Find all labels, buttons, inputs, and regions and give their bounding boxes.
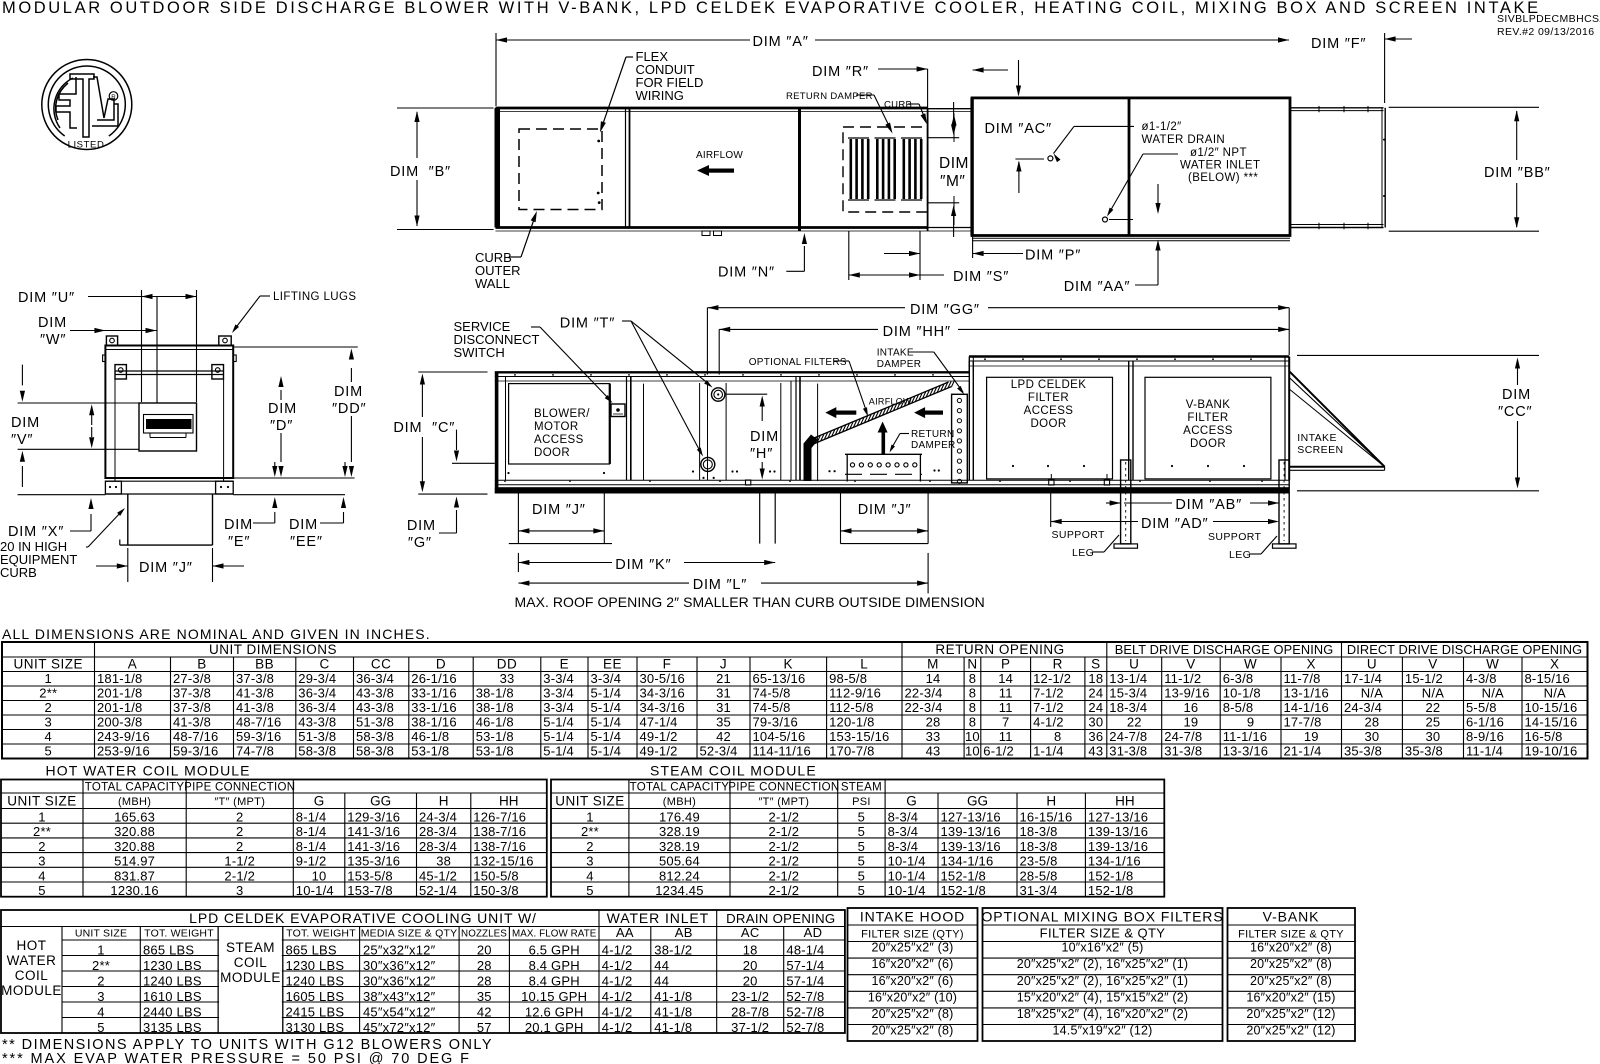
svg-text:15-3/4: 15-3/4 (1109, 686, 1147, 701)
svg-text:200-3/8: 200-3/8 (97, 715, 143, 730)
svg-text:23-1/2: 23-1/2 (731, 989, 769, 1004)
svg-text:19: 19 (1184, 715, 1199, 730)
svg-text:20″x25″x2″ (8): 20″x25″x2″ (8) (871, 1024, 953, 1038)
svg-text:WATER: WATER (7, 953, 57, 968)
svg-text:LIFTING LUGS: LIFTING LUGS (273, 291, 356, 303)
svg-text:138-7/16: 138-7/16 (473, 824, 526, 839)
svg-text:1234.45: 1234.45 (655, 883, 703, 898)
svg-text:28-3/4: 28-3/4 (419, 839, 457, 854)
svg-text:59-3/16: 59-3/16 (173, 744, 219, 759)
svg-text:320.88: 320.88 (114, 824, 155, 839)
svg-text:DIM ″J″: DIM ″J″ (858, 502, 912, 518)
svg-text:20: 20 (743, 958, 758, 973)
svg-text:58-3/8: 58-3/8 (356, 744, 394, 759)
svg-text:45″x72″x12″: 45″x72″x12″ (363, 1020, 436, 1035)
svg-text:5: 5 (45, 744, 52, 759)
svg-text:28: 28 (1365, 715, 1380, 730)
svg-text:65-13/16: 65-13/16 (753, 671, 806, 686)
svg-text:38″x43″x12″: 38″x43″x12″ (363, 989, 436, 1004)
svg-text:35-3/8: 35-3/8 (1344, 744, 1382, 759)
svg-text:13-9/16: 13-9/16 (1164, 686, 1210, 701)
svg-text:1: 1 (38, 810, 45, 825)
svg-text:7: 7 (1002, 715, 1009, 730)
svg-text:25: 25 (1426, 715, 1441, 730)
svg-text:E: E (560, 657, 570, 672)
svg-text:22-3/4: 22-3/4 (905, 686, 943, 701)
svg-text:53-1/8: 53-1/8 (411, 744, 449, 759)
svg-text:4-1/2: 4-1/2 (602, 942, 633, 957)
svg-text:11: 11 (999, 729, 1013, 744)
svg-text:DIM ″R″: DIM ″R″ (812, 64, 869, 80)
svg-text:8: 8 (969, 715, 976, 730)
svg-text:4: 4 (45, 729, 52, 744)
svg-text:41-3/8: 41-3/8 (236, 700, 274, 715)
svg-text:1-1/4: 1-1/4 (1033, 744, 1064, 759)
svg-text:SUPPORT: SUPPORT (1052, 529, 1106, 541)
svg-text:1: 1 (45, 671, 52, 686)
svg-text:EE: EE (603, 657, 622, 672)
svg-text:DIM ″HH″: DIM ″HH″ (883, 324, 951, 340)
svg-text:DIM ″N″: DIM ″N″ (718, 265, 775, 281)
svg-text:5-1/4: 5-1/4 (591, 715, 622, 730)
svg-text:FILTER SIZE (QTY): FILTER SIZE (QTY) (861, 929, 964, 941)
svg-text:HH: HH (499, 794, 519, 809)
svg-text:16-5/8: 16-5/8 (1525, 729, 1563, 744)
svg-text:SIVBLPDECMBHCSAH: SIVBLPDECMBHCSAH (1497, 13, 1600, 25)
svg-text:ACCESS: ACCESS (1183, 425, 1233, 437)
svg-text:M: M (927, 657, 939, 672)
svg-text:865 LBS: 865 LBS (286, 942, 337, 957)
svg-text:38-1/8: 38-1/8 (476, 700, 514, 715)
svg-text:DIM ″AB″: DIM ″AB″ (1175, 497, 1242, 513)
svg-text:52-1/4: 52-1/4 (419, 883, 457, 898)
svg-text:8-9/16: 8-9/16 (1466, 729, 1504, 744)
svg-text:57-1/4: 57-1/4 (786, 958, 824, 973)
svg-text:4-1/2: 4-1/2 (602, 989, 633, 1004)
svg-text:INTAKE: INTAKE (877, 348, 914, 359)
svg-text:38-1/2: 38-1/2 (654, 942, 692, 957)
svg-text:139-13/16: 139-13/16 (1088, 824, 1148, 839)
svg-text:28-5/8: 28-5/8 (1020, 868, 1058, 883)
svg-text:28-7/8: 28-7/8 (731, 1005, 769, 1020)
svg-text:AC: AC (741, 925, 760, 940)
svg-text:134-1/16: 134-1/16 (941, 854, 994, 869)
svg-text:F: F (663, 657, 672, 672)
svg-text:3: 3 (97, 989, 104, 1004)
svg-text:U: U (1367, 657, 1377, 672)
svg-text:58-3/8: 58-3/8 (356, 729, 394, 744)
svg-text:5: 5 (858, 810, 865, 825)
svg-text:WALL: WALL (475, 276, 510, 291)
svg-text:2: 2 (236, 839, 243, 854)
svg-text:36-3/4: 36-3/4 (298, 700, 336, 715)
svg-text:WATER DRAIN: WATER DRAIN (1142, 134, 1226, 146)
svg-text:51-3/8: 51-3/8 (298, 729, 336, 744)
svg-text:5-1/4: 5-1/4 (591, 729, 622, 744)
svg-text:176.49: 176.49 (659, 810, 700, 825)
svg-text:24-7/8: 24-7/8 (1109, 729, 1147, 744)
svg-text:139-13/16: 139-13/16 (1088, 839, 1148, 854)
svg-text:30: 30 (1365, 729, 1380, 744)
svg-text:14-1/16: 14-1/16 (1284, 700, 1330, 715)
svg-text:36-3/4: 36-3/4 (356, 671, 394, 686)
svg-text:OPTIONAL MIXING BOX FILTERS: OPTIONAL MIXING BOX FILTERS (981, 909, 1223, 925)
svg-text:DAMPER: DAMPER (877, 359, 922, 370)
svg-text:320.88: 320.88 (114, 839, 155, 854)
svg-text:120-1/8: 120-1/8 (829, 715, 875, 730)
svg-text:74-5/8: 74-5/8 (753, 700, 791, 715)
svg-text:″DD″: ″DD″ (332, 401, 366, 417)
svg-text:DIM ″P″: DIM ″P″ (1025, 248, 1081, 264)
svg-text:AD: AD (804, 925, 823, 940)
svg-text:B: B (197, 657, 207, 672)
svg-text:5: 5 (858, 883, 865, 898)
svg-text:MODULAR OUTDOOR SIDE DISCHARGE: MODULAR OUTDOOR SIDE DISCHARGE BLOWER WI… (2, 0, 1541, 17)
svg-text:31-3/8: 31-3/8 (1164, 744, 1202, 759)
svg-text:DIM ″K″: DIM ″K″ (615, 557, 671, 573)
svg-text:46-1/8: 46-1/8 (411, 729, 449, 744)
svg-text:8-1/4: 8-1/4 (296, 839, 327, 854)
svg-text:″T″ (MPT): ″T″ (MPT) (758, 796, 809, 808)
svg-text:49-1/2: 49-1/2 (640, 729, 678, 744)
svg-text:5-5/8: 5-5/8 (1466, 700, 1497, 715)
svg-text:30-5/16: 30-5/16 (640, 671, 686, 686)
svg-text:10: 10 (965, 729, 980, 744)
svg-text:1240 LBS: 1240 LBS (286, 974, 345, 989)
svg-text:126-7/16: 126-7/16 (473, 810, 526, 825)
svg-text:10: 10 (312, 868, 327, 883)
svg-text:45″x54″x12″: 45″x54″x12″ (363, 1005, 436, 1020)
svg-text:″T″ (MPT): ″T″ (MPT) (214, 796, 265, 808)
svg-text:35: 35 (477, 989, 492, 1004)
svg-text:DOOR: DOOR (534, 447, 570, 459)
svg-text:WIRING: WIRING (636, 88, 684, 103)
svg-text:16: 16 (1184, 700, 1199, 715)
svg-text:AIRFLOW: AIRFLOW (696, 150, 743, 161)
svg-text:3-3/4: 3-3/4 (543, 700, 574, 715)
svg-text:COIL: COIL (234, 955, 268, 970)
svg-text:G: G (906, 794, 917, 809)
svg-text:14: 14 (926, 671, 941, 686)
svg-text:15″x20″x2″ (4), 15″x15″x2″ (2): 15″x20″x2″ (4), 15″x15″x2″ (2) (1017, 990, 1189, 1004)
svg-text:4-1/2: 4-1/2 (602, 958, 633, 973)
svg-text:8.4 GPH: 8.4 GPH (529, 974, 580, 989)
svg-text:16″x20″x2″ (15): 16″x20″x2″ (15) (1246, 990, 1335, 1004)
svg-text:4-1/2: 4-1/2 (602, 1020, 633, 1035)
svg-text:43-3/8: 43-3/8 (298, 715, 336, 730)
svg-text:134-1/16: 134-1/16 (1088, 854, 1141, 869)
svg-text:″M″: ″M″ (940, 173, 965, 190)
svg-text:2-1/2: 2-1/2 (224, 868, 255, 883)
svg-text:13-1/16: 13-1/16 (1284, 686, 1330, 701)
svg-text:ACCESS: ACCESS (1024, 405, 1074, 417)
svg-text:20″x25″x2″ (12): 20″x25″x2″ (12) (1246, 1024, 1335, 1038)
svg-text:G: G (314, 794, 325, 809)
svg-text:46-1/8: 46-1/8 (476, 715, 514, 730)
svg-text:28: 28 (477, 958, 492, 973)
svg-text:2: 2 (97, 974, 104, 989)
svg-text:31-3/4: 31-3/4 (1020, 883, 1058, 898)
svg-text:FILTER: FILTER (1187, 412, 1228, 424)
svg-text:TOT. WEIGHT: TOT. WEIGHT (286, 928, 356, 940)
svg-text:132-15/16: 132-15/16 (473, 854, 533, 869)
svg-text:DIM: DIM (11, 415, 40, 431)
svg-text:1: 1 (586, 810, 593, 825)
svg-text:51-3/8: 51-3/8 (356, 715, 394, 730)
svg-text:20.1 GPH: 20.1 GPH (525, 1020, 584, 1035)
svg-text:141-3/16: 141-3/16 (347, 839, 400, 854)
svg-text:UNIT SIZE: UNIT SIZE (555, 794, 625, 809)
svg-text:10-1/4: 10-1/4 (296, 883, 334, 898)
svg-text:DIM: DIM (334, 384, 363, 400)
svg-text:8-15/16: 8-15/16 (1525, 671, 1571, 686)
svg-text:AB: AB (675, 925, 693, 940)
svg-text:5: 5 (858, 839, 865, 854)
svg-text:DIM ″F″: DIM ″F″ (1311, 36, 1366, 52)
svg-text:37-1/2: 37-1/2 (731, 1020, 769, 1035)
svg-text:FILTER SIZE & QTY: FILTER SIZE & QTY (1238, 929, 1344, 941)
svg-text:DIRECT DRIVE DISCHARGE OPENING: DIRECT DRIVE DISCHARGE OPENING (1347, 642, 1582, 657)
svg-text:201-1/8: 201-1/8 (97, 700, 143, 715)
svg-text:514.97: 514.97 (114, 854, 155, 869)
svg-text:505.64: 505.64 (659, 854, 700, 869)
svg-text:H: H (439, 794, 449, 809)
svg-text:SUPPORT: SUPPORT (1208, 531, 1262, 543)
svg-text:DAMPER: DAMPER (911, 440, 956, 451)
svg-text:HOT WATER COIL MODULE: HOT WATER COIL MODULE (46, 763, 251, 779)
svg-text:22-3/4: 22-3/4 (905, 700, 943, 715)
svg-text:37-3/8: 37-3/8 (173, 686, 211, 701)
svg-text:20″x25″x2″ (8): 20″x25″x2″ (8) (871, 1007, 953, 1021)
svg-text:11-1/16: 11-1/16 (1223, 729, 1268, 744)
svg-text:6-3/8: 6-3/8 (1223, 671, 1254, 686)
svg-text:127-13/16: 127-13/16 (1088, 810, 1148, 825)
svg-text:243-9/16: 243-9/16 (97, 729, 150, 744)
svg-text:7-1/2: 7-1/2 (1033, 700, 1064, 715)
svg-text:47-1/4: 47-1/4 (640, 715, 678, 730)
svg-text:8: 8 (1054, 729, 1061, 744)
svg-text:4: 4 (38, 868, 45, 883)
svg-text:18-3/8: 18-3/8 (1020, 824, 1058, 839)
svg-text:1: 1 (97, 942, 104, 957)
svg-text:5: 5 (97, 1020, 104, 1035)
svg-text:LPD CELDEK: LPD CELDEK (1011, 379, 1087, 391)
svg-text:STEAM: STEAM (226, 940, 275, 955)
svg-text:A: A (128, 657, 138, 672)
svg-text:52-3/4: 52-3/4 (700, 744, 738, 759)
svg-text:33: 33 (500, 671, 515, 686)
svg-text:9-1/2: 9-1/2 (296, 854, 327, 869)
svg-text:48-7/16: 48-7/16 (173, 729, 219, 744)
svg-text:812.24: 812.24 (659, 868, 700, 883)
svg-text:RETURN: RETURN (911, 429, 954, 440)
svg-text:DIM ″T″: DIM ″T″ (560, 316, 615, 332)
svg-text:30: 30 (1088, 715, 1103, 730)
svg-text:28: 28 (926, 715, 941, 730)
svg-text:UNIT SIZE: UNIT SIZE (13, 657, 83, 672)
svg-text:41-3/8: 41-3/8 (236, 686, 274, 701)
svg-text:328.19: 328.19 (659, 824, 700, 839)
svg-text:″G″: ″G″ (408, 535, 432, 551)
svg-text:R: R (111, 94, 116, 101)
svg-text:57-1/4: 57-1/4 (786, 974, 824, 989)
svg-text:DIM ″B″: DIM ″B″ (390, 164, 451, 180)
svg-text:36-3/4: 36-3/4 (298, 686, 336, 701)
svg-text:16″x20″x2″ (8): 16″x20″x2″ (8) (1250, 941, 1332, 955)
svg-text:WATER INLET: WATER INLET (1180, 160, 1260, 172)
svg-text:43-3/8: 43-3/8 (356, 686, 394, 701)
svg-text:13-1/4: 13-1/4 (1109, 671, 1147, 686)
svg-text:49-1/2: 49-1/2 (640, 744, 678, 759)
svg-text:18: 18 (743, 942, 758, 957)
svg-text:11-7/8: 11-7/8 (1284, 671, 1321, 686)
svg-text:HH: HH (1115, 794, 1135, 809)
svg-text:42: 42 (716, 729, 731, 744)
svg-text:52-7/8: 52-7/8 (786, 1020, 824, 1035)
svg-text:865 LBS: 865 LBS (143, 942, 194, 957)
svg-text:35: 35 (716, 715, 731, 730)
svg-text:SWITCH: SWITCH (454, 345, 505, 360)
svg-text:″V″: ″V″ (11, 432, 33, 448)
svg-text:1610 LBS: 1610 LBS (143, 989, 202, 1004)
svg-text:24-3/4: 24-3/4 (1344, 700, 1382, 715)
svg-text:3: 3 (45, 715, 52, 730)
svg-text:2: 2 (586, 839, 593, 854)
svg-text:152-1/8: 152-1/8 (1088, 883, 1134, 898)
svg-text:2**: 2** (33, 824, 51, 839)
svg-text:PIPE CONNECTION: PIPE CONNECTION (184, 782, 295, 794)
svg-text:8-3/4: 8-3/4 (888, 810, 919, 825)
svg-text:UNIT DIMENSIONS: UNIT DIMENSIONS (209, 642, 337, 657)
svg-text:″H″: ″H″ (750, 446, 773, 462)
svg-text:DRAIN OPENING: DRAIN OPENING (726, 911, 835, 926)
svg-text:2**: 2** (92, 958, 110, 973)
svg-text:V: V (1428, 657, 1438, 672)
svg-text:11: 11 (999, 700, 1013, 715)
svg-text:831.87: 831.87 (114, 868, 155, 883)
svg-text:31: 31 (716, 686, 731, 701)
svg-text:ø1/2″ NPT: ø1/2″ NPT (1190, 147, 1247, 159)
svg-text:33: 33 (926, 729, 941, 744)
svg-text:112-9/16: 112-9/16 (829, 686, 881, 701)
svg-text:2-1/2: 2-1/2 (769, 883, 800, 898)
svg-text:28: 28 (477, 974, 492, 989)
svg-text:10-1/4: 10-1/4 (888, 854, 926, 869)
svg-text:V-BANK: V-BANK (1263, 909, 1320, 925)
svg-text:DIM: DIM (289, 517, 318, 533)
svg-text:GG: GG (967, 794, 988, 809)
svg-text:127-13/16: 127-13/16 (941, 810, 1001, 825)
svg-text:LEG: LEG (1072, 547, 1094, 559)
svg-text:19-10/16: 19-10/16 (1525, 744, 1578, 759)
svg-text:INTAKE: INTAKE (1297, 432, 1337, 444)
svg-text:48-7/16: 48-7/16 (236, 715, 282, 730)
svg-text:41-1/8: 41-1/8 (654, 1020, 692, 1035)
svg-text:X: X (1550, 657, 1560, 672)
svg-text:PSI: PSI (852, 796, 871, 808)
svg-text:150-5/8: 150-5/8 (473, 868, 519, 883)
svg-text:21: 21 (716, 671, 731, 686)
svg-text:14-15/16: 14-15/16 (1525, 715, 1578, 730)
svg-text:J: J (720, 657, 727, 672)
svg-text:DIM ″J″: DIM ″J″ (139, 560, 193, 576)
svg-text:N: N (967, 657, 977, 672)
svg-text:24-7/8: 24-7/8 (1164, 729, 1202, 744)
svg-text:5-1/4: 5-1/4 (591, 744, 622, 759)
svg-text:19: 19 (1304, 729, 1319, 744)
svg-text:W: W (1244, 657, 1257, 672)
svg-text:30″x36″x12″: 30″x36″x12″ (363, 974, 436, 989)
svg-text:2: 2 (236, 810, 243, 825)
svg-text:4-1/2: 4-1/2 (602, 974, 633, 989)
svg-text:DIM: DIM (407, 518, 436, 534)
svg-text:N/A: N/A (1422, 686, 1444, 701)
svg-text:DOOR: DOOR (1190, 438, 1226, 450)
svg-text:23-5/8: 23-5/8 (1020, 854, 1058, 869)
svg-text:30″x36″x12″: 30″x36″x12″ (363, 958, 436, 973)
svg-text:18-3/4: 18-3/4 (1109, 700, 1147, 715)
svg-text:22: 22 (1127, 715, 1142, 730)
svg-text:153-7/8: 153-7/8 (347, 883, 393, 898)
svg-text:MAX. FLOW RATE: MAX. FLOW RATE (512, 929, 597, 940)
svg-text:43: 43 (926, 744, 941, 759)
svg-text:30: 30 (1426, 729, 1441, 744)
svg-text:18″x25″x2″ (4), 16″x20″x2″ (2): 18″x25″x2″ (4), 16″x20″x2″ (2) (1017, 1007, 1189, 1021)
svg-text:REV.#2 09/13/2016: REV.#2 09/13/2016 (1497, 26, 1595, 38)
svg-text:1240 LBS: 1240 LBS (143, 974, 202, 989)
svg-text:5: 5 (38, 883, 45, 898)
svg-text:38-1/8: 38-1/8 (476, 686, 514, 701)
svg-text:DIM ″U″: DIM ″U″ (18, 290, 75, 306)
svg-text:24: 24 (1088, 686, 1103, 701)
svg-text:COIL: COIL (15, 968, 49, 983)
svg-text:DOOR: DOOR (1030, 418, 1066, 430)
svg-text:LPD CELDEK EVAPORATIVE COOLING: LPD CELDEK EVAPORATIVE COOLING UNIT W/ (189, 910, 537, 926)
svg-text:52-7/8: 52-7/8 (786, 1005, 824, 1020)
svg-text:20″x25″x2″ (2), 16″x25″x2″ (1): 20″x25″x2″ (2), 16″x25″x2″ (1) (1017, 957, 1189, 971)
svg-text:8: 8 (969, 686, 976, 701)
svg-text:DIM: DIM (939, 155, 969, 172)
svg-text:8: 8 (969, 700, 976, 715)
svg-text:20″x25″x2″ (8): 20″x25″x2″ (8) (1250, 957, 1332, 971)
svg-text:H: H (1046, 794, 1056, 809)
svg-text:53-1/8: 53-1/8 (476, 744, 514, 759)
svg-text:(BELOW) ***: (BELOW) *** (1188, 172, 1258, 184)
svg-text:3-3/4: 3-3/4 (543, 671, 574, 686)
svg-text:DIM ″A″: DIM ″A″ (753, 34, 809, 50)
svg-text:U: U (1129, 657, 1139, 672)
svg-text:48-1/4: 48-1/4 (786, 942, 824, 957)
svg-text:150-3/8: 150-3/8 (473, 883, 519, 898)
svg-text:38-1/16: 38-1/16 (411, 715, 457, 730)
svg-text:28-3/4: 28-3/4 (419, 824, 457, 839)
svg-text:41-1/8: 41-1/8 (654, 1005, 692, 1020)
svg-text:18-3/8: 18-3/8 (1020, 839, 1058, 854)
svg-text:R: R (1053, 657, 1063, 672)
svg-text:WATER INLET: WATER INLET (607, 910, 709, 926)
svg-text:20: 20 (743, 974, 758, 989)
svg-text:DIM: DIM (268, 401, 297, 417)
svg-text:98-5/8: 98-5/8 (829, 671, 867, 686)
svg-text:V: V (1186, 657, 1196, 672)
svg-text:2440 LBS: 2440 LBS (143, 1005, 202, 1020)
svg-text:6.5 GPH: 6.5 GPH (529, 942, 580, 957)
svg-text:ACCESS: ACCESS (534, 434, 584, 446)
svg-text:5-1/4: 5-1/4 (543, 715, 574, 730)
svg-text:8: 8 (969, 671, 976, 686)
svg-text:HOT: HOT (17, 938, 47, 953)
svg-text:AA: AA (616, 925, 634, 940)
